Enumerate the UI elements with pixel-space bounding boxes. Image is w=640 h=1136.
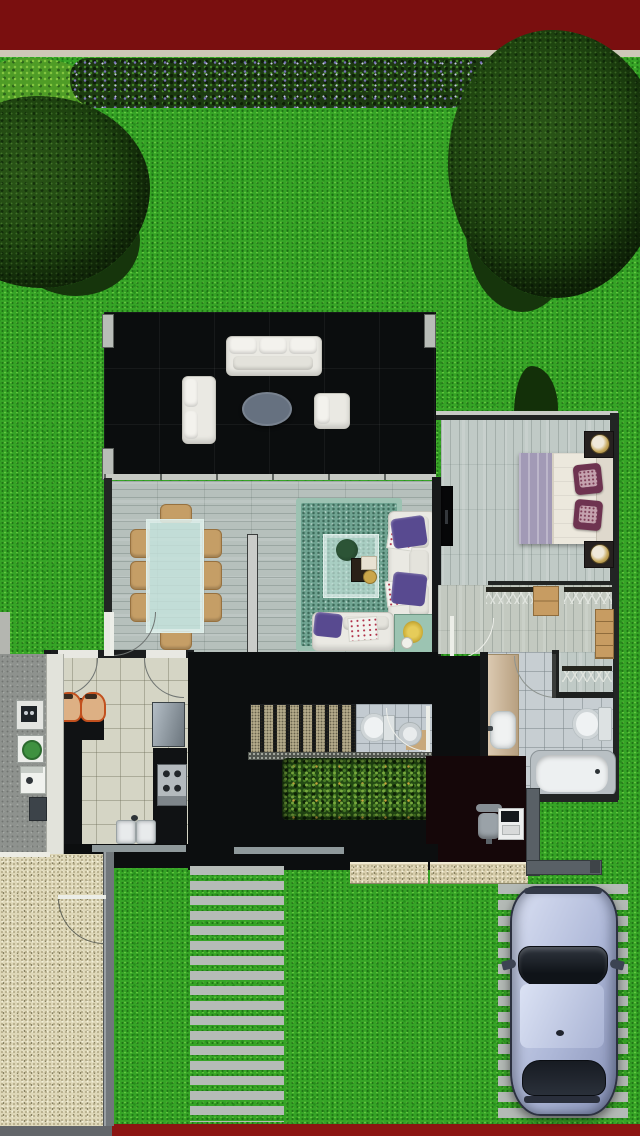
bed-pillow-plum <box>573 463 604 496</box>
bottom-left-curb <box>0 1126 112 1136</box>
closet-rail <box>564 587 612 604</box>
utility-meter <box>17 735 44 763</box>
utility-meter <box>29 797 47 821</box>
study-desk <box>498 808 524 840</box>
closet-dresser <box>533 586 559 616</box>
cup <box>401 637 413 649</box>
refrigerator <box>152 702 185 747</box>
terrace-sofa-three-seat <box>226 336 322 376</box>
curb-strip <box>0 612 10 654</box>
divider-wall <box>247 534 258 660</box>
car-windshield <box>518 946 608 986</box>
bar-stool <box>80 692 106 722</box>
sink-faucet <box>131 815 138 821</box>
window-sill <box>92 845 186 852</box>
terrace-pillar <box>102 314 114 348</box>
wc-door-leaf <box>426 706 430 752</box>
closet-annex-wall <box>552 692 614 698</box>
terrace-pillar <box>424 314 436 348</box>
hall-door-leaf <box>450 616 454 660</box>
patio-gate-leaf <box>58 895 106 899</box>
terrace-oval-table <box>242 392 292 426</box>
table-lamp <box>590 544 610 564</box>
car-antenna <box>556 1030 564 1036</box>
utility-meter <box>20 766 46 794</box>
bath-sink <box>490 711 516 749</box>
terrace-glass-rail <box>104 474 436 480</box>
laptop <box>501 811 519 822</box>
closet-rail <box>562 666 612 682</box>
flower-hedge <box>70 58 470 108</box>
window-sill <box>234 847 344 854</box>
dining-chair <box>202 561 222 590</box>
bed-throw <box>519 453 552 544</box>
table-lamp <box>590 434 610 454</box>
porch-step <box>430 862 528 884</box>
patio-top-edge <box>0 852 50 857</box>
terrace-armchair <box>314 393 350 429</box>
patio-wall <box>103 852 114 1126</box>
site-plan-render <box>0 0 640 1136</box>
kitchen-door-gap <box>146 650 186 658</box>
car <box>504 884 622 1116</box>
car-rear-window <box>522 1060 606 1096</box>
car-rear-trim <box>524 1096 600 1103</box>
kitchen-sink-double <box>114 818 156 844</box>
dining-chair <box>202 593 222 622</box>
side-table <box>394 614 436 656</box>
car-roof <box>520 984 604 1048</box>
chaise-pillow <box>313 612 343 639</box>
dining-door-leaf <box>110 612 114 656</box>
garden-wall-post <box>590 860 600 873</box>
stepping-stone-path <box>190 866 284 1122</box>
coffee-table-books <box>351 556 377 584</box>
terrace-loveseat <box>182 376 216 444</box>
car-front-trim <box>524 888 602 894</box>
staircase <box>250 704 356 756</box>
closet-shelf <box>595 609 614 659</box>
bathtub <box>530 750 616 798</box>
sofa-pillow <box>390 515 428 549</box>
courtyard-planter <box>282 758 430 820</box>
bedroom-tv-panel <box>441 486 453 546</box>
bath-door-leaf <box>552 654 556 698</box>
sofa-pillow <box>390 571 427 606</box>
dining-chair <box>160 631 192 650</box>
tub-drain <box>595 769 600 774</box>
magazine <box>347 616 379 642</box>
cooktop <box>157 764 187 806</box>
utility-meter <box>16 700 44 730</box>
dining-chair <box>202 529 222 558</box>
kitchen-door-gap <box>58 650 98 658</box>
toilet-tank <box>598 707 612 741</box>
porch-step <box>350 862 428 884</box>
bed-pillow-plum <box>573 499 604 531</box>
walkway <box>46 654 64 862</box>
bedroom-north-wall <box>436 415 618 420</box>
